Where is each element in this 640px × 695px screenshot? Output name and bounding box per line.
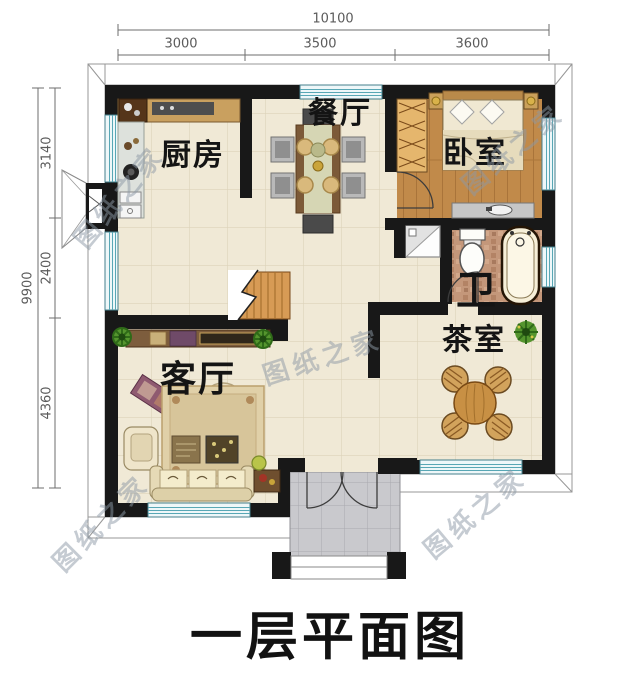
tearoom-window — [420, 460, 522, 474]
dim-left-seg-3: 4360 — [40, 386, 55, 419]
floor-plan-page: 10100 3000 3500 3600 9900 3140 2400 4360… — [0, 0, 640, 695]
room-label-bathroom: 卫 — [456, 258, 498, 316]
dim-top-seg-3: 3600 — [455, 37, 488, 52]
dim-left-seg-2: 2400 — [40, 251, 55, 284]
dim-top-total: 10100 — [312, 12, 353, 27]
living-window — [148, 503, 250, 517]
dim-top-seg-1: 3000 — [164, 37, 197, 52]
kitchen-window — [105, 115, 118, 182]
room-label-bedroom: 卧室 — [443, 128, 507, 172]
entry-porch — [272, 552, 406, 579]
stair-window — [105, 232, 118, 310]
dim-top-seg-2: 3500 — [303, 37, 336, 52]
room-label-kitchen: 厨房 — [161, 130, 225, 174]
dim-left-total: 9900 — [21, 271, 36, 304]
staircase — [228, 270, 290, 320]
washing-machine — [406, 226, 440, 257]
bathroom-window — [542, 247, 555, 287]
entry-door-opening — [305, 458, 378, 472]
room-label-dining: 餐厅 — [308, 88, 372, 132]
bedroom-window — [542, 118, 555, 190]
room-label-tearoom: 茶室 — [442, 315, 506, 359]
room-label-living: 客厅 — [160, 350, 236, 402]
dim-left-seg-1: 3140 — [40, 136, 55, 169]
plan-title: 一层平面图 — [190, 595, 470, 670]
